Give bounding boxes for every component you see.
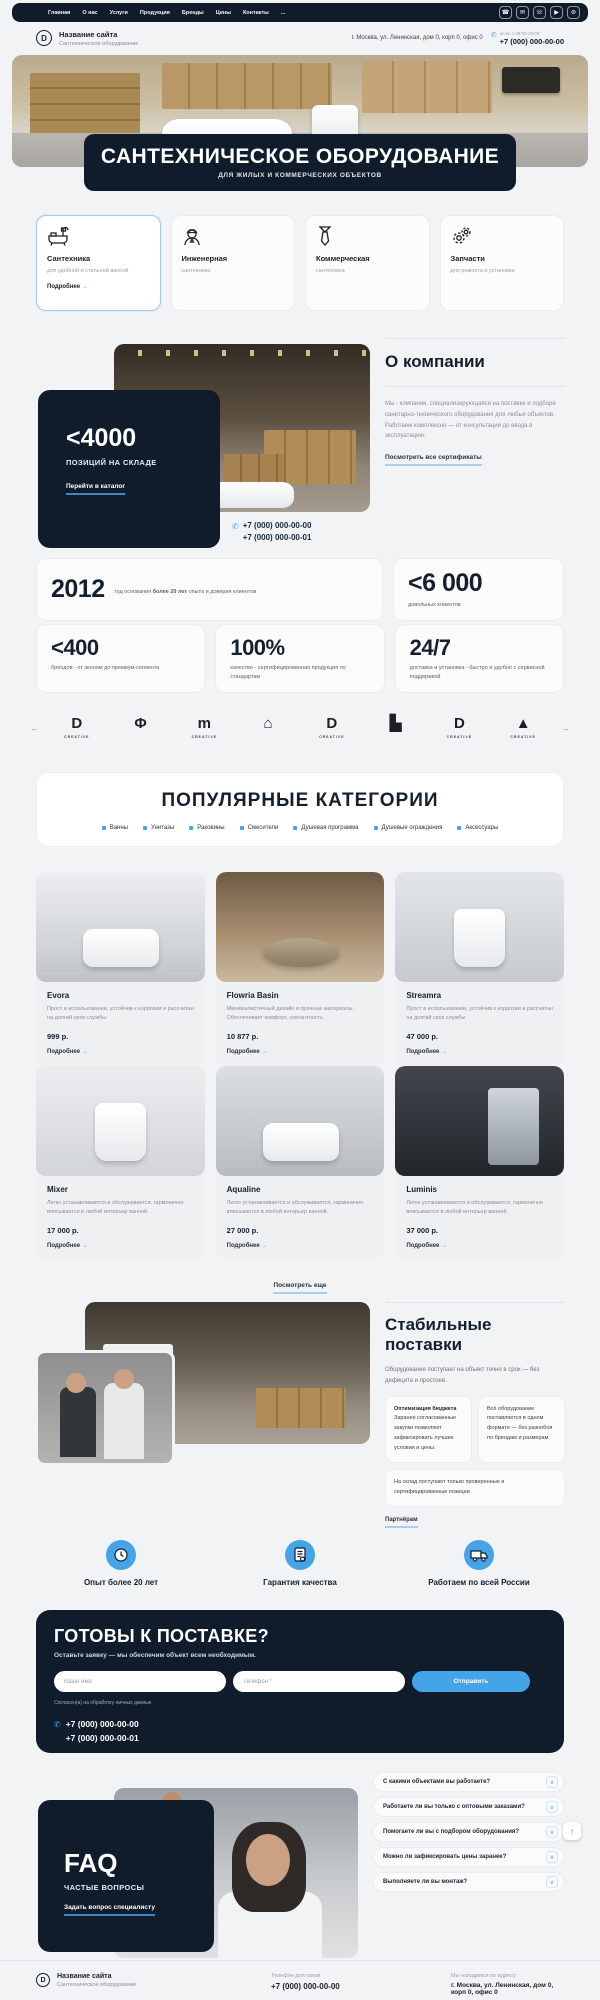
phone-number[interactable]: +7 (000) 000-00-01 [66, 1732, 139, 1746]
stat-label: довольных клиентов [408, 601, 549, 610]
cta-heading: ГОТОВЫ К ПОСТАВКЕ? [54, 1626, 546, 1647]
footer-site-name: Название сайта [57, 1973, 136, 1980]
arrow-right-icon: → [82, 1243, 88, 1249]
nav-item-about[interactable]: О нас [82, 10, 97, 16]
product-photo [395, 1066, 564, 1176]
arrow-right-icon: → [82, 1049, 88, 1055]
faq-section: FAQ ЧАСТЫЕ ВОПРОСЫ Задать вопрос специал… [0, 1760, 600, 1965]
product-photo [395, 872, 564, 982]
arrow-right-icon: → [441, 1243, 447, 1249]
about-paragraph: Мы - компания, специализирующаяся на пос… [385, 387, 565, 442]
category-subtitle: сантехника [316, 267, 419, 275]
category-title: Инженерная [182, 254, 285, 263]
carousel-next-button[interactable]: → [561, 723, 570, 733]
lead-form: Отправить [54, 1671, 546, 1692]
brand-logo: DCREATIVE [433, 716, 485, 740]
stat-brands: <400 брендов - от эконом до премиум-сегм… [36, 624, 205, 693]
faq-card: FAQ ЧАСТЫЕ ВОПРОСЫ Задать вопрос специал… [38, 1800, 214, 1952]
phone-input[interactable] [233, 1671, 405, 1692]
brand-logo: ⌂ [242, 716, 294, 740]
arrow-right-icon: → [262, 1049, 268, 1055]
feature-geography: Работаем по всей России [394, 1540, 564, 1587]
stat-founded: 2012 год основания более 20 лет опыта и … [36, 558, 383, 621]
product-photo [216, 1066, 385, 1176]
submit-button[interactable]: Отправить [412, 1671, 530, 1692]
products-row-2: Mixer Легко устанавливается и обслуживае… [36, 1066, 564, 1259]
chevron-down-icon[interactable]: ∨ [546, 1876, 558, 1888]
product-card[interactable]: Luminis Легко устанавливается и обслужив… [395, 1066, 564, 1259]
brand-logo: DCREATIVE [51, 716, 103, 740]
stat-clients: <6 000 довольных клиентов [393, 558, 564, 621]
category-title: Коммерческая [316, 254, 419, 263]
brand-logo: ▲CREATIVE [497, 716, 549, 740]
footer-address: г. Москва, ул. Ленинская, дом 0, корп 0,… [451, 1982, 564, 1996]
carousel-prev-button[interactable]: ← [30, 723, 39, 733]
feature-experience: Опыт более 20 лет [36, 1540, 206, 1587]
feature-label: Опыт более 20 лет [36, 1578, 206, 1587]
workers-photo [35, 1350, 175, 1466]
gears-icon [451, 226, 554, 246]
stats-row-1: 2012 год основания более 20 лет опыта и … [36, 558, 564, 616]
category-subtitle: для ремонта и установки [451, 267, 554, 275]
site-tagline: Сантехническое оборудование [59, 41, 138, 47]
decor [162, 63, 332, 109]
popular-categories-card: ПОПУЛЯРНЫЕ КАТЕГОРИИ Ванны Унитазы Раков… [36, 772, 564, 847]
product-description: Легко устанавливается и обслуживается, г… [227, 1199, 374, 1218]
phone-icon: ✆ [54, 1720, 61, 1745]
phone-number[interactable]: +7 (000) 000-00-00 [243, 520, 312, 532]
product-description: Прост в использовании, устойчив к корроз… [406, 1005, 553, 1024]
header-phone-block: ✆ пн-вс с 08:00-20:00 +7 (000) 000-00-00 [491, 31, 564, 46]
faq-title: FAQ [64, 1848, 214, 1879]
footer-phone[interactable]: +7 (000) 000-00-00 [271, 1982, 451, 1991]
category-subtitle: сантехника [182, 267, 285, 275]
stat-value: 2012 [51, 575, 105, 604]
category-more-link[interactable]: Подробнее→ [47, 284, 150, 290]
category-title: Сантехника [47, 254, 150, 263]
brand-logo: Φ [115, 716, 167, 740]
product-price: 27 000 р. [227, 1226, 374, 1235]
landing-page: Главная О нас Услуги Продукция Бренды Це… [0, 0, 600, 2000]
supply-heading: Стабильные поставки [385, 1303, 565, 1355]
faq-question[interactable]: С какими объектами вы работаете? ∨ [373, 1772, 564, 1792]
stat-label: доставка и установка - быстро и удобно с… [410, 664, 549, 682]
supply-text-column: Стабильные поставки Оборудование поступа… [385, 1302, 565, 1528]
chip-unitazy[interactable]: Унитазы [143, 825, 174, 831]
category-chips: Ванны Унитазы Раковины Смесители Душевая… [47, 825, 553, 831]
stat-value: 24/7 [410, 635, 549, 661]
product-title: Streamra [406, 991, 553, 1000]
decor [246, 1834, 290, 1886]
product-photo [36, 872, 205, 982]
tie-icon [316, 226, 419, 246]
show-more-wrapper: Посмотреть еще [0, 1274, 600, 1294]
stock-card: <4000 ПОЗИЦИЙ НА СКЛАДЕ Перейти в катало… [38, 390, 220, 548]
bullet-icon [189, 826, 193, 830]
product-card[interactable]: Aqualine Легко устанавливается и обслужи… [216, 1066, 385, 1259]
footer-address-label: Мы находимся по адресу: [451, 1973, 564, 1979]
nav-menu: Главная О нас Услуги Продукция Бренды Це… [48, 10, 285, 16]
mail-icon[interactable]: ✉ [516, 6, 529, 19]
arrow-right-icon: → [262, 1243, 268, 1249]
bullet-icon [143, 826, 147, 830]
nav-item-home[interactable]: Главная [48, 10, 70, 16]
site-logo[interactable]: D [36, 1973, 50, 1987]
category-card-santekhnika[interactable]: Сантехника для удобной и стильной ванной… [36, 215, 161, 311]
feature-label: Гарантия качества [215, 1578, 385, 1587]
working-hours: пн-вс с 08:00-20:00 [500, 31, 564, 36]
faq-questions: С какими объектами вы работаете? ∨ Работ… [373, 1772, 564, 1897]
footer-site-tagline: Сантехническое оборудование [57, 1982, 136, 1988]
phone-icon: ✆ [232, 522, 239, 544]
stock-label: ПОЗИЦИЙ НА СКЛАДЕ [66, 458, 220, 467]
supply-section: Стабильные поставки Оборудование поступа… [0, 1302, 600, 1517]
stat-value: <6 000 [408, 569, 549, 598]
top-navigation: Главная О нас Услуги Продукция Бренды Це… [12, 3, 588, 22]
arrow-right-icon: → [82, 284, 88, 290]
hero-title: САНТЕХНИЧЕСКОЕ ОБОРУДОВАНИЕ [101, 145, 499, 169]
certificates-link[interactable]: Посмотреть все сертификаты [385, 454, 482, 466]
site-header: D Название сайта Сантехническое оборудов… [36, 23, 564, 53]
header-address: г. Москва, ул. Ленинская, дом 0, корп 0,… [352, 35, 483, 41]
chevron-down-icon[interactable]: ∨ [546, 1776, 558, 1788]
supply-card-certified: На склад поступают только проверенные и … [385, 1469, 565, 1507]
cta-card: ГОТОВЫ К ПОСТАВКЕ? Оставьте заявку — мы … [36, 1610, 564, 1753]
nav-item-services[interactable]: Услуги [110, 10, 128, 16]
phone-icon: ✆ [491, 32, 497, 39]
popular-heading: ПОПУЛЯРНЫЕ КАТЕГОРИИ [47, 790, 553, 812]
hero-subtitle: ДЛЯ ЖИЛЫХ И КОММЕРЧЕСКИХ ОБЪЕКТОВ [218, 172, 382, 179]
product-price: 37 000 р. [406, 1226, 553, 1235]
bullet-icon [374, 826, 378, 830]
consent-note[interactable]: Согласен(а) на обработку личных данных [54, 1700, 546, 1706]
bullet-icon [293, 826, 297, 830]
product-photo [216, 872, 385, 982]
phone-icon[interactable]: ☎ [499, 6, 512, 19]
stats-row-2: <400 брендов - от эконом до премиум-сегм… [36, 624, 564, 688]
product-title: Aqualine [227, 1185, 374, 1194]
faq-question[interactable]: Работаете ли вы только с оптовыми заказа… [373, 1797, 564, 1817]
product-title: Flowria Basin [227, 991, 374, 1000]
chip-rakoviny[interactable]: Раковины [189, 825, 224, 831]
product-photo [36, 1066, 205, 1176]
ask-question-link[interactable]: Задать вопрос специалисту [64, 1904, 155, 1916]
faq-question[interactable]: Можно ли зафиксировать цены заранее? ∨ [373, 1847, 564, 1867]
product-more-link[interactable]: Подробнее→ [406, 1243, 553, 1249]
product-card[interactable]: Streamra Прост в использовании, устойчив… [395, 872, 564, 1065]
partners-link[interactable]: Партнёрам [385, 1517, 418, 1528]
product-price: 10 877 р. [227, 1032, 374, 1041]
hero-banner: САНТЕХНИЧЕСКОЕ ОБОРУДОВАНИЕ ДЛЯ ЖИЛЫХ И … [84, 134, 516, 191]
brands-carousel: ← DCREATIVE Φ mCREATIVE ⌂ DCREATIVE ▙ DC… [30, 716, 570, 740]
chip-smesiteli[interactable]: Смесители [240, 825, 279, 831]
stat-value: 100% [230, 635, 369, 661]
site-name-block: Название сайта Сантехническое оборудован… [59, 30, 138, 47]
scroll-to-top-button[interactable]: ↑ [563, 1822, 581, 1840]
product-title: Luminis [406, 1185, 553, 1194]
chip-aksessuary[interactable]: Аксессуары [457, 825, 498, 831]
stock-value: <4000 [66, 424, 220, 453]
site-logo[interactable]: D [36, 30, 52, 46]
footer-phone-label: Телефон для связи [271, 1973, 451, 1979]
category-card-parts[interactable]: Запчасти для ремонта и установки [440, 215, 565, 311]
nav-item-brands[interactable]: Бренды [182, 10, 204, 16]
decor [104, 1383, 144, 1459]
chip-dushevaya-programma[interactable]: Душевая программа [293, 825, 358, 831]
product-more-link[interactable]: Подробнее→ [227, 1049, 374, 1055]
product-card[interactable]: Flowria Basin Минималистичный дизайн и п… [216, 872, 385, 1065]
category-subtitle: для удобной и стильной ванной [47, 267, 150, 275]
products-row-1: Evora Прост в использовании, устойчив к … [36, 872, 564, 1065]
category-cards: Сантехника для удобной и стильной ванной… [36, 215, 564, 311]
clock-icon [106, 1540, 136, 1570]
certificate-icon [285, 1540, 315, 1570]
product-description: Легко устанавливается и обслуживается, г… [406, 1199, 553, 1218]
about-heading: О компании [385, 339, 565, 386]
chevron-down-icon[interactable]: ∨ [546, 1826, 558, 1838]
cta-subtitle: Оставьте заявку — мы обеспечим объект вс… [54, 1652, 546, 1659]
name-input[interactable] [54, 1671, 226, 1692]
brand-logo: DCREATIVE [306, 716, 358, 740]
footer-phone-block: Телефон для связи +7 (000) 000-00-00 [271, 1973, 451, 2000]
feature-label: Работаем по всей России [394, 1578, 564, 1587]
stat-label: качество - сертифицированная продукция п… [230, 664, 369, 682]
product-title: Mixer [47, 1185, 194, 1194]
decor [114, 1369, 134, 1389]
faq-question[interactable]: Выполняете ли вы монтаж? ∨ [373, 1872, 564, 1892]
brand-logo: ▙ [370, 716, 422, 740]
phone-number[interactable]: +7 (000) 000-00-00 [66, 1718, 139, 1732]
decor [60, 1387, 96, 1457]
site-footer: D Название сайта Сантехническое оборудов… [0, 1960, 600, 2000]
truck-icon [464, 1540, 494, 1570]
stat-quality: 100% качество - сертифицированная продук… [215, 624, 384, 693]
supply-card-budget: Оптимизация бюджетаЗаранее согласованные… [385, 1396, 472, 1463]
catalog-link[interactable]: Перейти в каталог [66, 483, 125, 495]
nav-item-more[interactable]: ... [281, 10, 286, 16]
show-more-link[interactable]: Посмотреть еще [273, 1282, 326, 1294]
footer-address-block: Мы находимся по адресу: г. Москва, ул. Л… [451, 1973, 564, 2000]
chevron-down-icon[interactable]: ∨ [546, 1801, 558, 1813]
product-more-link[interactable]: Подробнее→ [47, 1243, 194, 1249]
stat-delivery: 24/7 доставка и установка - быстро и удо… [395, 624, 564, 693]
product-card[interactable]: Mixer Легко устанавливается и обслуживае… [36, 1066, 205, 1259]
decor [66, 1373, 86, 1393]
product-price: 999 р. [47, 1032, 194, 1041]
faq-subtitle: ЧАСТЫЕ ВОПРОСЫ [64, 1883, 214, 1892]
category-card-engineering[interactable]: Инженерная сантехника [171, 215, 296, 311]
chip-vanny[interactable]: Ванны [102, 825, 128, 831]
product-card[interactable]: Evora Прост в использовании, устойчив к … [36, 872, 205, 1065]
decor [210, 482, 294, 508]
engineer-icon [182, 226, 285, 246]
category-title: Запчасти [451, 254, 554, 263]
whatsapp-icon[interactable]: ☏ [533, 6, 546, 19]
supply-intro: Оборудование поступает на объект точно в… [385, 1365, 565, 1387]
product-more-link[interactable]: Подробнее→ [406, 1049, 553, 1055]
site-name: Название сайта [59, 30, 138, 39]
arrow-right-icon: → [441, 1049, 447, 1055]
telegram-icon[interactable]: ▶ [550, 6, 563, 19]
about-section: <4000 ПОЗИЦИЙ НА СКЛАДЕ Перейти в катало… [0, 338, 600, 553]
bullet-icon [102, 826, 106, 830]
product-description: Прост в использовании, устойчив к корроз… [47, 1005, 194, 1024]
nav-item-prices[interactable]: Цены [216, 10, 231, 16]
header-phone[interactable]: +7 (000) 000-00-00 [500, 37, 564, 46]
cta-phones: ✆ +7 (000) 000-00-00 +7 (000) 000-00-01 [54, 1718, 546, 1745]
decor [502, 67, 560, 93]
product-more-link[interactable]: Подробнее→ [227, 1243, 374, 1249]
product-price: 17 000 р. [47, 1226, 194, 1235]
product-title: Evora [47, 991, 194, 1000]
product-more-link[interactable]: Подробнее→ [47, 1049, 194, 1055]
decor [114, 350, 370, 356]
stat-label: брендов - от эконом до премиум-сегмента [51, 664, 190, 673]
nav-item-contacts[interactable]: Контакты [243, 10, 269, 16]
feature-quality: Гарантия качества [215, 1540, 385, 1587]
stat-label: год основания более 20 лет опыта и довер… [115, 588, 257, 597]
bullet-icon [240, 826, 244, 830]
decor [362, 61, 492, 113]
supply-card-format: Всё оборудование поставляется в одном фо… [478, 1396, 565, 1463]
viber-icon[interactable]: ⊚ [567, 6, 580, 19]
supply-cards: Оптимизация бюджетаЗаранее согласованные… [385, 1396, 565, 1463]
stat-value: <400 [51, 635, 190, 661]
product-description: Минималистичный дизайн и прочные материа… [227, 1005, 374, 1024]
decor [256, 1388, 346, 1428]
phone-number[interactable]: +7 (000) 000-00-01 [243, 532, 312, 544]
brand-logo: mCREATIVE [178, 716, 230, 740]
faq-question[interactable]: Помогаете ли вы с подбором оборудования?… [373, 1822, 564, 1842]
footer-brand: D Название сайта Сантехническое оборудов… [36, 1973, 271, 2000]
chip-dushevye-ograzhdeniya[interactable]: Душевые ограждения [374, 825, 443, 831]
chevron-down-icon[interactable]: ∨ [546, 1851, 558, 1863]
category-card-commercial[interactable]: Коммерческая сантехника [305, 215, 430, 311]
about-text-column: О компании Мы - компания, специализирующ… [385, 338, 565, 466]
product-price: 47 000 р. [406, 1032, 553, 1041]
arrow-up-icon: ↑ [570, 1827, 574, 1836]
features-row: Опыт более 20 лет Гарантия качества Рабо… [36, 1540, 564, 1587]
bullet-icon [457, 826, 461, 830]
nav-social-icons: ☎ ✉ ☏ ▶ ⊚ [499, 6, 580, 19]
nav-item-products[interactable]: Продукция [140, 10, 170, 16]
product-description: Легко устанавливается и обслуживается, г… [47, 1199, 194, 1218]
bathtub-icon [47, 226, 150, 246]
about-phones: ✆ +7 (000) 000-00-00 +7 (000) 000-00-01 [232, 520, 311, 544]
